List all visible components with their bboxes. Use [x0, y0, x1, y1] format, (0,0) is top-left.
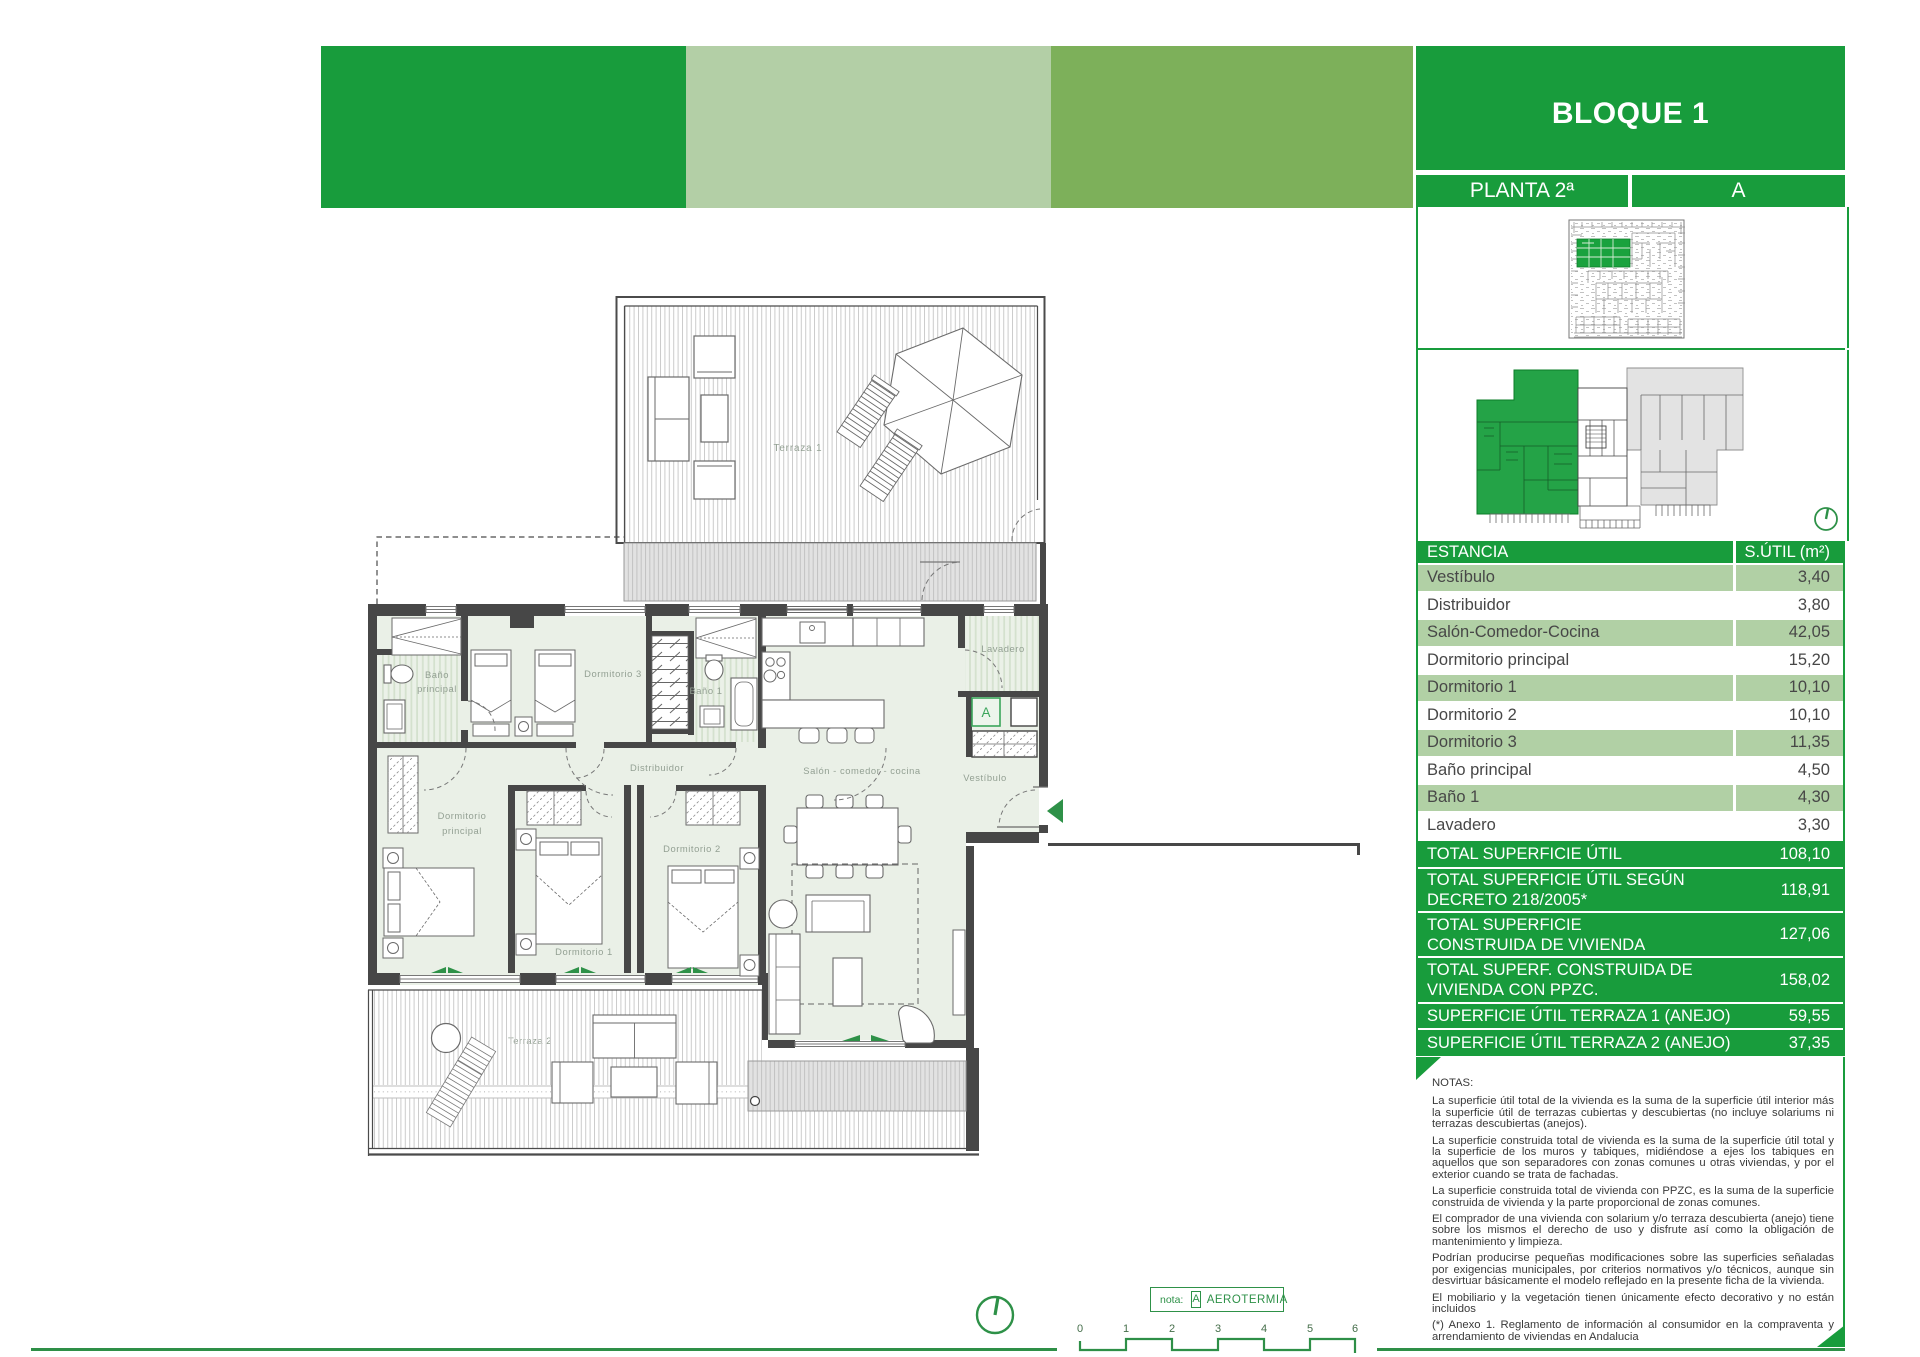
svg-text:0: 0 [1077, 1323, 1083, 1335]
svg-text:Dormitorio 2: Dormitorio 2 [663, 843, 721, 854]
svg-text:principal: principal [442, 825, 482, 836]
svg-text:Distribuidor: Distribuidor [630, 762, 684, 773]
svg-text:Salón - comedor - cocina: Salón - comedor - cocina [803, 765, 921, 776]
svg-text:Lavadero: Lavadero [981, 643, 1025, 654]
svg-text:Dormitorio: Dormitorio [438, 810, 487, 821]
svg-text:Vestíbulo: Vestíbulo [963, 772, 1007, 783]
svg-text:Baño 1: Baño 1 [689, 685, 722, 696]
svg-text:Dormitorio 3: Dormitorio 3 [584, 668, 642, 679]
svg-text:Dormitorio 1: Dormitorio 1 [555, 946, 613, 957]
svg-text:A: A [981, 705, 990, 720]
svg-text:1: 1 [1123, 1323, 1129, 1335]
svg-text:6: 6 [1352, 1323, 1358, 1335]
svg-text:4: 4 [1261, 1323, 1267, 1335]
svg-text:Terraza 1: Terraza 1 [774, 443, 823, 454]
svg-text:Baño: Baño [425, 669, 449, 680]
svg-text:5: 5 [1307, 1323, 1313, 1335]
svg-text:3: 3 [1215, 1323, 1221, 1335]
svg-text:principal: principal [417, 683, 457, 694]
svg-text:2: 2 [1169, 1323, 1175, 1335]
